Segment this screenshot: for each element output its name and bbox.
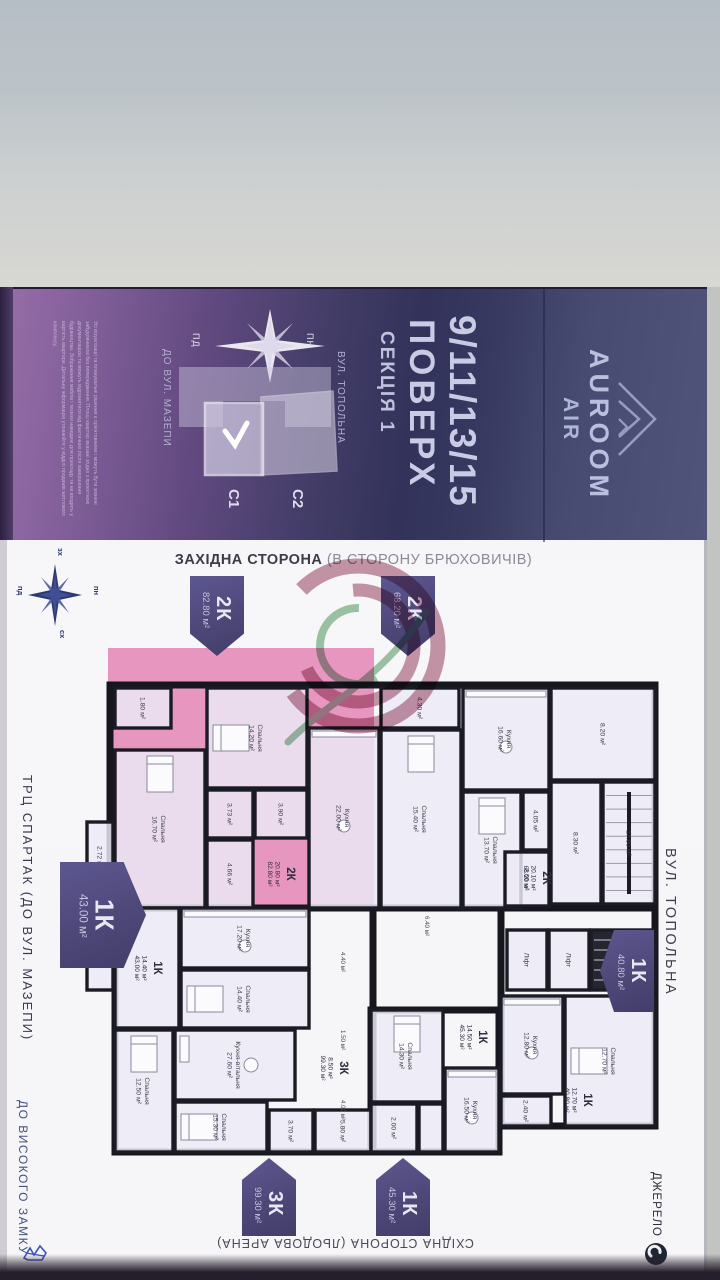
room: Ліфт — [549, 930, 589, 990]
room: Спальня14.20 м² — [207, 688, 307, 788]
minimap-direction-label: ДО ВУЛ. МАЗЕПИ — [161, 349, 172, 447]
room-label: Спальня12.70 м² — [601, 1047, 617, 1075]
room: Кухня-вітальня27.60 м² — [175, 1030, 295, 1100]
brand-name: AUROOM — [583, 349, 614, 502]
room-label: 3.70 м² — [287, 1120, 294, 1143]
room-label: 17.80 м² — [625, 830, 632, 857]
tag-area: 45.30 м² — [386, 1187, 397, 1223]
kitchen-counter-icon — [466, 691, 546, 697]
bed-icon — [187, 986, 223, 1012]
floor-plan: Спальня16.70 м²Спальня14.20 м²Кухня22.00… — [75, 680, 665, 1160]
header-band: Усі візуалізації та планувальні рішення … — [13, 287, 707, 540]
room: Ліфт — [507, 930, 547, 990]
floor-plan-svg: Спальня16.70 м²Спальня14.20 м²Кухня22.00… — [75, 680, 665, 1160]
band-divider — [543, 289, 545, 542]
tag-code: 1К — [626, 952, 649, 990]
site-minimap — [165, 361, 345, 487]
apartment-label: 1К14.50 м²45.30 м² — [458, 1024, 488, 1050]
tag-area: 82.80 м² — [200, 592, 211, 628]
brand-sub: AIR — [558, 397, 582, 442]
room: Кухня17.20 м² — [181, 908, 309, 968]
floors-word: ПОВЕРХ — [401, 319, 441, 489]
tag-code: 1К — [89, 892, 120, 938]
minimap-street-label: ВУЛ. ТОПОЛЬНА — [335, 351, 346, 444]
disclaimer-text: Усі візуалізації та планувальні рішення … — [37, 321, 99, 517]
room-label: 8.20 м² — [599, 723, 606, 746]
tag-code: 2К — [402, 590, 425, 628]
tag-area: 68.20 м² — [391, 592, 402, 628]
plan-compass-icon — [26, 560, 84, 630]
room: 1.80 м² — [115, 688, 171, 728]
room: 8.30 м² — [551, 782, 601, 904]
corridor-label: 6.40 м² — [423, 916, 430, 936]
page-left-edge — [0, 540, 7, 1280]
room: 17.80 м² — [603, 782, 655, 904]
room: 3.90 м² — [255, 790, 307, 838]
room: 4.05 м² — [523, 792, 549, 850]
corridor-label: 4.00 м² — [339, 1100, 346, 1120]
kitchen-counter-icon — [504, 999, 560, 1005]
tag-code: 3К — [263, 1185, 286, 1223]
room-label: 5.80 м² — [339, 1120, 346, 1143]
room: Спальня14.40 м² — [181, 970, 309, 1028]
compass-south-small-label: пд — [16, 586, 25, 595]
room-label: 3.73 м² — [226, 803, 233, 826]
bed-icon — [131, 1036, 157, 1072]
building-c1-label: С1 — [225, 489, 242, 508]
room: 8.20 м² — [551, 688, 655, 780]
corridor-label: 4.40 м² — [339, 952, 346, 972]
source-label: ДЖЕРЕЛО — [650, 1172, 662, 1237]
room-label: 8.30 м² — [572, 832, 579, 855]
building-c2-label: С2 — [289, 489, 306, 508]
room: Спальня15.30 м² — [175, 1102, 267, 1152]
room-label: 3.90 м² — [277, 803, 284, 826]
room-label: Спальня14.20 м² — [248, 724, 264, 752]
kitchen-counter-icon — [184, 911, 306, 917]
sofa-icon — [180, 1036, 189, 1062]
room-label: 2.40 м² — [522, 1100, 529, 1123]
bed-icon — [408, 736, 434, 772]
compass-north-small-label: пн — [92, 586, 101, 595]
photo-of-floorplan-brochure: Усі візуалізації та планувальні рішення … — [0, 0, 720, 1280]
room-label: 4.05 м² — [532, 810, 539, 833]
compass-north-label: ПН — [305, 333, 315, 348]
tag-area: 99.30 м² — [252, 1187, 263, 1223]
east-side-caption: СХІДНА СТОРОНА (ЛЬОДОВА АРЕНА) — [0, 1236, 690, 1250]
brochure-left-edge — [0, 287, 13, 540]
room: 4.66 м² — [207, 840, 253, 908]
bed-icon — [213, 725, 249, 751]
room-label: 4.66 м² — [226, 863, 233, 886]
room: Кухня16.60 м² — [463, 688, 549, 790]
room: Спальня14.30 м² — [371, 1010, 443, 1102]
room: 2.00 м² — [371, 1104, 417, 1152]
tag-code: 2К — [211, 590, 234, 628]
room-label: Спальня14.30 м² — [398, 1042, 414, 1070]
room — [419, 1104, 443, 1152]
tag-code: 1К — [397, 1185, 420, 1223]
room-label: Спальня16.70 м² — [151, 815, 167, 843]
bed-icon — [147, 756, 173, 792]
room-label: Спальня12.50 м² — [135, 1077, 151, 1105]
room-label: Ліфт — [523, 953, 531, 968]
floors-number: 9/11/13/15 — [441, 315, 483, 508]
background-right-strip — [707, 287, 720, 1280]
west-caption-sub: (В СТОРОНУ БРЮХОВИЧІВ) — [322, 552, 532, 568]
room-label: Спальня13.70 м² — [483, 836, 499, 864]
tag-area: 40.80 м² — [615, 954, 626, 990]
room-label: Спальня15.30 м² — [212, 1113, 228, 1141]
compass-south-label: ПД — [191, 333, 201, 348]
apartment-label: 2К20.80 м²82.80 м² — [266, 861, 296, 887]
room-label: 1.80 м² — [139, 697, 146, 720]
room: Спальня12.50 м² — [115, 1030, 173, 1152]
room: Кухня12.80 м² — [501, 996, 563, 1094]
street-castle-label: ДО ВИСОКОГО ЗАМКУ — [16, 1100, 30, 1255]
room: 4.30 м² — [381, 688, 459, 728]
room: Спальня15.40 м² — [381, 730, 461, 908]
kitchen-counter-icon — [448, 1071, 496, 1077]
room: Кухня16.50 м² — [445, 1068, 499, 1152]
room: Кухня22.00 м² — [309, 728, 379, 908]
room-label: Ліфт — [565, 953, 573, 968]
auroom-logo-icon — [615, 379, 661, 459]
tag-area: 43.00 м² — [77, 894, 89, 938]
street-spartak-label: ТРЦ СПАРТАК (ДО ВУЛ. МАЗЕПИ) — [20, 775, 35, 1041]
room: 3.70 м² — [269, 1110, 313, 1152]
table-icon — [244, 1058, 258, 1072]
kitchen-counter-icon — [312, 731, 376, 737]
section-label: СЕКЦІЯ 1 — [375, 331, 397, 434]
west-side-caption: ЗАХІДНА СТОРОНА (В СТОРОНУ БРЮХОВИЧІВ) — [0, 552, 707, 568]
room-label: Спальня15.40 м² — [412, 805, 428, 833]
room-label: Спальня14.40 м² — [236, 985, 252, 1013]
room: 3.73 м² — [207, 790, 253, 838]
room-label: 4.30 м² — [416, 697, 423, 720]
table-shadow — [0, 1254, 720, 1280]
bed-icon — [479, 798, 505, 834]
room: 2.40 м² — [501, 1096, 551, 1126]
west-caption-bold: ЗАХІДНА СТОРОНА — [175, 552, 323, 568]
corridor-label: 1.50 м² — [339, 1030, 346, 1050]
apartment-label: 3К8.50 м²99.30 м² — [319, 1055, 349, 1081]
compass-west-label: зх — [56, 548, 65, 556]
compass-east-label: сх — [58, 630, 67, 638]
room-label: 2.00 м² — [390, 1117, 397, 1140]
